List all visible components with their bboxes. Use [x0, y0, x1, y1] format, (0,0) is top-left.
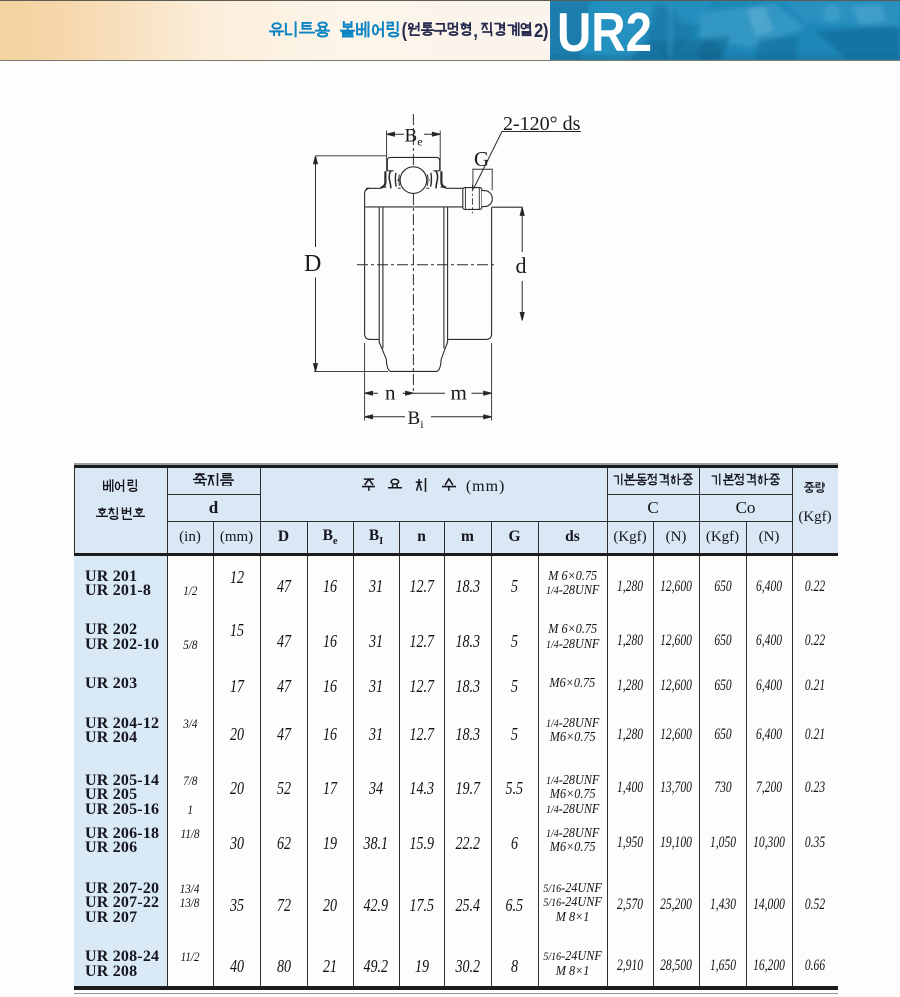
svg-text:2-120° ds: 2-120° ds	[503, 113, 581, 135]
svg-text:Bi: Bi	[408, 408, 425, 431]
svg-text:D: D	[304, 251, 321, 277]
svg-text:m: m	[451, 381, 467, 405]
svg-text:d: d	[516, 253, 527, 278]
svg-text:n: n	[385, 381, 396, 405]
svg-text:Be: Be	[405, 126, 423, 149]
svg-text:G: G	[474, 147, 489, 171]
svg-text:UR2: UR2	[557, 1, 652, 60]
